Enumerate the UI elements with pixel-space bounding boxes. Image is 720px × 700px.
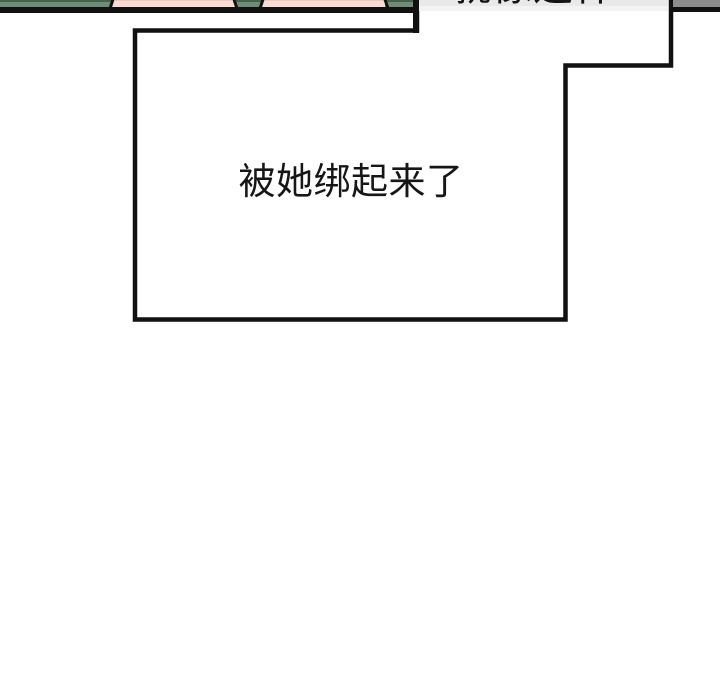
caption-text: 被她绑起来了	[137, 160, 565, 204]
top-right-gray-corner	[673, 0, 720, 12]
comic-page[interactable]: 就像这样… 被她绑起来了	[0, 0, 720, 700]
artwork-row	[0, 0, 413, 7]
artwork-green-left	[0, 0, 112, 7]
top-speech-bubble-cutoff: 就像这样…	[419, 0, 668, 11]
top-speech-bubble-text: 就像这样…	[451, 0, 656, 7]
artwork-skin-left	[112, 0, 236, 7]
artwork-skin-right	[262, 0, 385, 7]
caption-box-outline	[0, 0, 720, 700]
artwork-panel-remnant	[0, 0, 413, 13]
artwork-green-right	[385, 0, 413, 7]
